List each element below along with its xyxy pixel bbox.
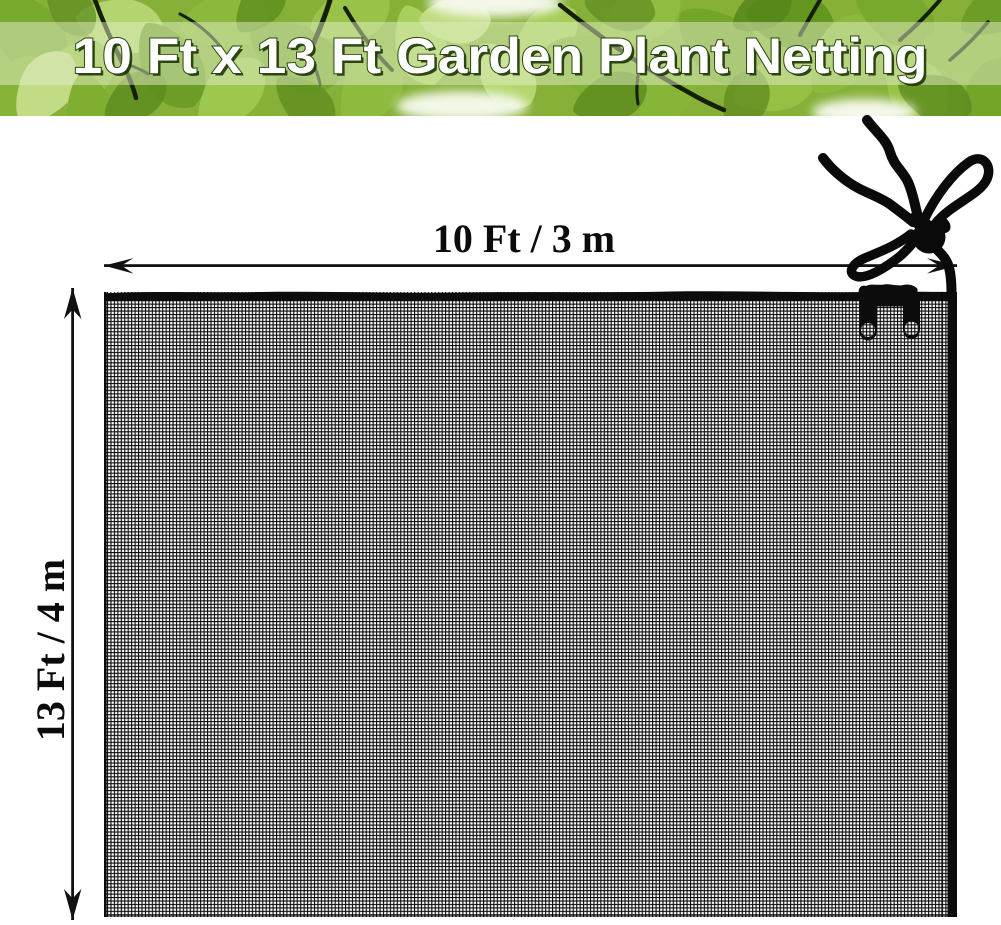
svg-text:13 Ft / 4 m: 13 Ft / 4 m (28, 559, 73, 741)
svg-text:10 Ft / 3 m: 10 Ft / 3 m (433, 216, 615, 261)
svg-text:10 Ft x 13 Ft Garden Plant Net: 10 Ft x 13 Ft Garden Plant Netting (73, 28, 928, 84)
